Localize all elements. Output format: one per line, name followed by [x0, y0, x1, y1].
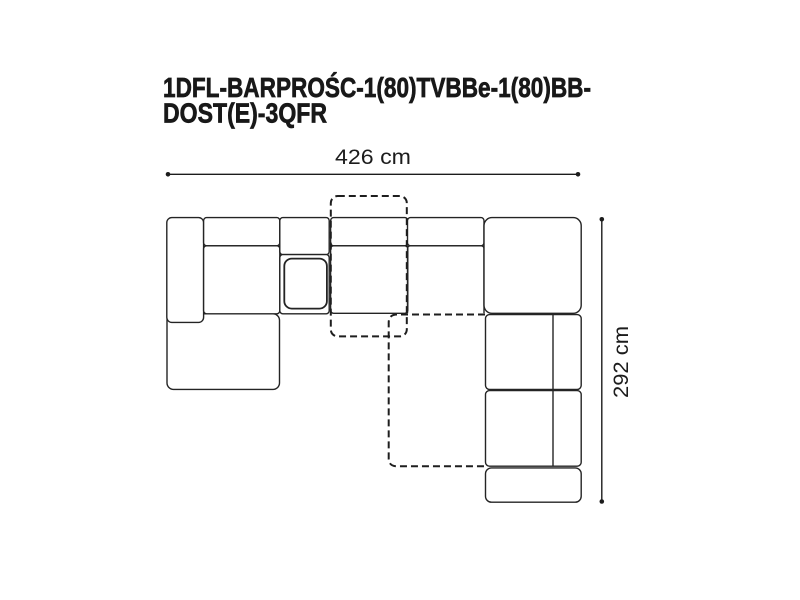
svg-text:DOST(E)-3QFR: DOST(E)-3QFR [163, 98, 327, 129]
svg-text:292 cm: 292 cm [610, 326, 633, 398]
svg-text:426 cm: 426 cm [335, 146, 411, 169]
